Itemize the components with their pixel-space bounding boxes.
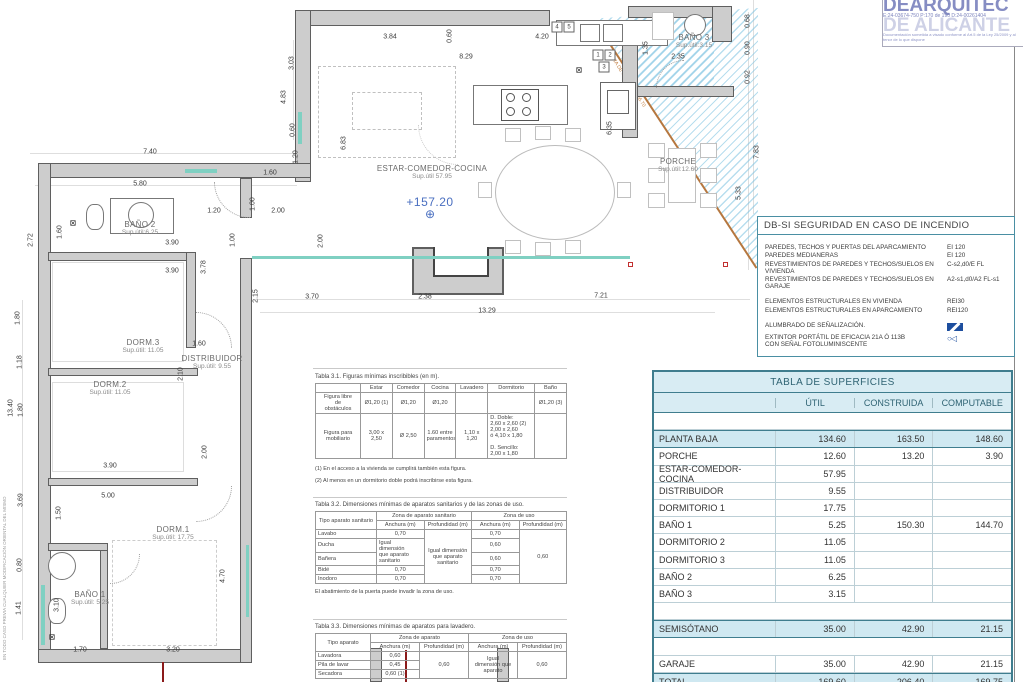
chair	[565, 128, 581, 142]
surfaces-computable-value: 144.70	[932, 517, 1011, 533]
dimension-label: 1.80	[15, 311, 22, 325]
surfaces-util-value: 9.55	[775, 483, 854, 499]
visado-stamp: DEARQUITEC E:24-03674-750 P:170 de 190 D…	[882, 0, 1023, 47]
t31-header: Baño	[535, 384, 567, 393]
fire-safety-row: Revestimientos de paredes y techos/suelo…	[765, 261, 1007, 275]
fire-safety-value: C-s2,d0/E FL	[947, 261, 1007, 268]
t33-cell: 0,60	[518, 652, 567, 679]
surfaces-construida-value	[854, 483, 933, 499]
dimension-label: 7.21	[594, 293, 608, 300]
fire-safety-group: Elementos estructurales en vivienda REI3…	[765, 298, 1007, 314]
window	[185, 169, 217, 173]
surfaces-util-value: 17.75	[775, 500, 854, 516]
t31-cell: Ø1,20 (3)	[535, 393, 567, 414]
dimension-label: 6.35	[607, 121, 614, 135]
fire-safety-label: Paredes medianeras	[765, 252, 947, 259]
dimension-label: 6.83	[341, 136, 348, 150]
window	[298, 112, 302, 144]
dimension-label: 1.35	[643, 41, 650, 55]
porch-chair	[648, 143, 665, 158]
t32-header: Zona de aparato sanitario	[377, 512, 472, 521]
sink	[603, 24, 623, 42]
floor-plan-sheet: COTA DE SÓTANO +156.70	[0, 0, 1024, 682]
fire-safety-row: Paredes medianeras EI 120	[765, 252, 1007, 259]
t32-header: Anchura (m)	[377, 521, 425, 530]
room-label: DORM.1 Sup.útil: 17.75	[152, 525, 194, 541]
tabla-3-3: Tabla 3.3. Dimensiones mínimas de aparat…	[315, 624, 567, 679]
sink	[580, 24, 600, 42]
surfaces-table-row: ESTAR-COMEDOR-COCINA 57.95	[654, 466, 1011, 483]
fire-safety-label: Elementos estructurales en aparcamiento	[765, 307, 947, 314]
t31-cell	[488, 393, 535, 414]
surfaces-util-value: 11.05	[775, 534, 854, 550]
room-label: DORM.2 Sup.útil: 11.05	[89, 380, 130, 396]
porch-chair	[700, 193, 717, 208]
surfaces-computable-value	[932, 466, 1011, 482]
surfaces-table-row: PLANTA BAJA 134.60 163.50 148.60	[654, 430, 1011, 448]
porch-chair	[700, 143, 717, 158]
porch-chair	[648, 193, 665, 208]
dimension-label: 3.90	[103, 463, 117, 470]
t31-cell	[456, 393, 488, 414]
chair	[617, 182, 631, 198]
appliance-tag: 4	[552, 22, 563, 33]
surfaces-room-name: SEMISÓTANO	[654, 621, 775, 637]
surfaces-header-construida: CONSTRUIDA	[854, 398, 933, 408]
surfaces-util-value: 3.15	[775, 586, 854, 602]
surfaces-computable-value	[932, 638, 1011, 654]
window	[41, 585, 45, 645]
t32-header: Anchura (m)	[472, 521, 520, 530]
dimension-label: 1.20	[207, 208, 221, 215]
fire-safety-table: DB-SI SEGURIDAD EN CASO DE INCENDIO Pare…	[757, 216, 1015, 357]
t32-cell: 0,70	[377, 575, 425, 584]
dimension-label: 4.83	[281, 90, 288, 104]
fire-safety-row: Elementos estructurales en vivienda REI3…	[765, 298, 1007, 305]
surfaces-construida-value	[854, 552, 933, 568]
tabla-3-2-table: Tipo aparato sanitario Zona de aparato s…	[315, 511, 567, 584]
dimension-label: 1.41	[16, 601, 23, 615]
room-area: Sup.útil: 11.05	[89, 389, 130, 396]
burner	[506, 107, 515, 116]
surfaces-table: TABLA DE SUPERFICIES ÚTIL CONSTRUIDA COM…	[652, 370, 1013, 682]
t32-cell: Bidé	[316, 566, 377, 575]
surfaces-util-value	[775, 603, 854, 619]
t32-cell: Ducha	[316, 539, 377, 553]
fire-safety-value: A2-s1,d0/A2 FL-s1	[947, 276, 1007, 283]
section-divider	[313, 619, 567, 620]
section-divider	[313, 497, 567, 498]
bath3-shower	[652, 12, 674, 40]
extractor-fan-icon: ⊠	[576, 66, 583, 75]
surfaces-table-body: PLANTA BAJA 134.60 163.50 148.60 PORCHE …	[654, 413, 1011, 682]
surfaces-table-row: DORMITORIO 2 11.05	[654, 534, 1011, 551]
surfaces-util-value	[775, 413, 854, 429]
section-mark	[162, 662, 164, 682]
surfaces-util-value: 11.05	[775, 552, 854, 568]
surfaces-header-computable: COMPUTABLE	[932, 398, 1011, 408]
chair	[535, 126, 551, 140]
dimension-label: 2.00	[271, 208, 285, 215]
surfaces-computable-value	[932, 534, 1011, 550]
dimension-label: 0.60	[290, 123, 297, 137]
surfaces-computable-value	[932, 483, 1011, 499]
surfaces-room-name: PORCHE	[654, 448, 775, 464]
fire-safety-group: Alumbrado de señalización. Extintor port…	[765, 322, 1007, 349]
t33-cell: 0,60	[371, 652, 420, 661]
porch-chair	[700, 168, 717, 183]
surfaces-computable-value	[932, 569, 1011, 585]
t32-header: Profundidad (m)	[424, 521, 472, 530]
t31-cell: 1,10 x 1,20	[456, 414, 488, 459]
chair	[565, 240, 581, 254]
room-area: Sup.útil 57.95	[377, 173, 487, 180]
surfaces-construida-value: 42.90	[854, 656, 933, 672]
t31-header	[316, 384, 361, 393]
dimension-label: 1.60	[57, 225, 64, 239]
dimension-label: 5.00	[101, 493, 115, 500]
wall	[712, 6, 732, 42]
fire-safety-value: EI 120	[947, 244, 1007, 251]
margin-note: EN TODO CASO PREVIA CUALQUIER MODIFICACI…	[2, 497, 7, 660]
bed-dorm1	[112, 540, 217, 646]
surfaces-util-value	[775, 638, 854, 654]
room-area: Sup.útil:12.60	[658, 166, 698, 173]
t33-cell: Igual dimensión que aparato	[469, 652, 518, 679]
t33-cell: 0,60 (1)	[371, 670, 420, 679]
dimension-label: 0.60	[447, 29, 454, 43]
bed-dorm3	[52, 262, 184, 362]
fire-safety-row: Elementos estructurales en aparcamiento …	[765, 307, 1007, 314]
surfaces-util-value: 169.60	[775, 674, 854, 682]
level-crosshair-icon: ⊕	[406, 209, 453, 219]
room-label: DISTRIBUIDOR Sup.útil: 9.55	[182, 354, 243, 370]
wall	[38, 649, 252, 663]
chair	[535, 242, 551, 256]
room-name: BAÑO 2	[122, 220, 158, 229]
surfaces-room-name: DORMITORIO 1	[654, 500, 775, 516]
surfaces-construida-value	[854, 466, 933, 482]
t33-header: Anchura (m)	[469, 643, 518, 652]
dimension-label: 1.00	[230, 233, 237, 247]
surfaces-construida-value: 163.50	[854, 431, 933, 447]
tabla-3-1-caption: Tabla 3.1. Figuras mínimas inscribibles …	[315, 374, 567, 380]
surfaces-computable-value	[932, 586, 1011, 602]
surfaces-construida-value: 13.20	[854, 448, 933, 464]
t31-header: Dormitorio	[488, 384, 535, 393]
surfaces-table-row: DORMITORIO 3 11.05	[654, 552, 1011, 569]
fire-safety-label: Revestimientos de paredes y techos/suelo…	[765, 261, 947, 275]
dining-table	[495, 145, 615, 240]
t32-cell: 0,70	[472, 530, 520, 539]
t32-cell: 0,60	[472, 539, 520, 553]
dimension-label: 13.29	[478, 308, 496, 315]
tabla-3-3-table: Tipo aparato Zona de aparato Zona de uso…	[315, 633, 567, 679]
t32-header: Profundidad (m)	[519, 521, 567, 530]
surfaces-construida-value	[854, 586, 933, 602]
t33-header: Tipo aparato	[316, 634, 371, 652]
surfaces-util-value: 5.25	[775, 517, 854, 533]
red-marker	[628, 262, 633, 267]
dimension-label: 2.72	[28, 233, 35, 247]
fire-safety-symbol-icon	[947, 322, 1007, 333]
fire-safety-title: DB-SI SEGURIDAD EN CASO DE INCENDIO	[757, 216, 1015, 235]
fire-safety-label: Revestimientos de paredes y techos/suelo…	[765, 276, 947, 290]
room-label: ESTAR-COMEDOR-COCINA Sup.útil 57.95	[377, 164, 487, 180]
t31-cell: Ø1,20	[424, 393, 456, 414]
bath1-washbasin	[48, 552, 76, 580]
dimension-label: 5.33	[736, 186, 743, 200]
dimension-label: 1.80	[18, 403, 25, 417]
surfaces-table-row: BAÑO 3 3.15	[654, 586, 1011, 603]
room-area: Sup.útil: 11.05	[122, 347, 163, 354]
dimension-label: 2.35	[671, 54, 685, 61]
surfaces-construida-value	[854, 569, 933, 585]
t33-header: Zona de uso	[469, 634, 567, 643]
surfaces-computable-value	[932, 500, 1011, 516]
dimension-label: 2.00	[318, 234, 325, 248]
surfaces-header-util: ÚTIL	[775, 398, 854, 408]
room-label: BAÑO 1 Sup.útil: 5.25	[71, 590, 109, 606]
surfaces-room-name: DISTRIBUIDOR	[654, 483, 775, 499]
dimension-label: 3.78	[201, 260, 208, 274]
dimension-label: 3.10	[54, 598, 61, 612]
dimension-label: 1.70	[73, 647, 87, 654]
t32-cell: Igual dimensión que aparato sanitario	[424, 530, 472, 584]
tabla-3-1: Tabla 3.1. Figuras mínimas inscribibles …	[315, 374, 567, 487]
t32-cell: Lavabo	[316, 530, 377, 539]
t33-cell: Pila de lavar	[316, 661, 371, 670]
chair	[505, 128, 521, 142]
dimension-label: 7.83	[754, 145, 761, 159]
room-name: DISTRIBUIDOR	[182, 354, 243, 363]
surfaces-table-row: DISTRIBUIDOR 9.55	[654, 483, 1011, 500]
room-name: BAÑO 1	[71, 590, 109, 599]
tabla-3-2-note: El abatimiento de la puerta puede invadi…	[315, 589, 567, 595]
room-label: PORCHE Sup.útil:12.60	[658, 157, 698, 173]
t33-cell: 0,45	[371, 661, 420, 670]
extractor-fan-icon: ⊠	[70, 219, 77, 228]
dimension-label: 3.90	[165, 268, 179, 275]
interior-wall	[48, 368, 198, 376]
dimension-label: 3.84	[383, 34, 397, 41]
surfaces-table-row	[654, 413, 1011, 430]
fire-safety-row: Extintor portátil de eficacia 21A ó 113B…	[765, 334, 1007, 348]
dimension-label: 0.92	[745, 70, 752, 84]
surfaces-table-title: TABLA DE SUPERFICIES	[654, 372, 1011, 393]
fire-safety-value: REI120	[947, 307, 1007, 314]
tabla-3-2: Tabla 3.2. Dimensiones mínimas de aparat…	[315, 502, 567, 595]
surfaces-room-name: DORMITORIO 2	[654, 534, 775, 550]
surfaces-table-row: GARAJE 35.00 42.90 21.15	[654, 656, 1011, 673]
fire-safety-row: Paredes, techos y puertas del aparcamien…	[765, 244, 1007, 251]
t33-header: Zona de aparato	[371, 634, 469, 643]
surfaces-room-name: BAÑO 2	[654, 569, 775, 585]
level-mark: +157.20 ⊕	[406, 195, 453, 219]
surfaces-computable-value: 169.75	[932, 674, 1011, 682]
surfaces-construida-value: 150.30	[854, 517, 933, 533]
surfaces-table-row	[654, 638, 1011, 655]
surfaces-room-name	[654, 413, 775, 429]
surfaces-table-row: BAÑO 2 6.25	[654, 569, 1011, 586]
tabla-3-3-caption: Tabla 3.3. Dimensiones mínimas de aparat…	[315, 624, 567, 630]
surfaces-table-row: TOTAL 169.60 206.40 169.75	[654, 673, 1011, 682]
t31-cell: 1.60 entre paramentos	[424, 414, 456, 459]
t31-note-2: (2) Al menos en un dormitorio doble podr…	[315, 476, 567, 488]
surfaces-construida-value	[854, 638, 933, 654]
glazed-facade	[252, 256, 630, 259]
t31-header: Comedor	[392, 384, 424, 393]
chair	[478, 182, 492, 198]
dim-guide-line	[255, 299, 750, 300]
dimension-label: 1.18	[17, 355, 24, 369]
t32-cell: 0,60	[519, 530, 567, 584]
t31-header: Lavadero	[456, 384, 488, 393]
fireplace-opening	[433, 247, 489, 277]
fire-safety-value: EI 120	[947, 252, 1007, 259]
room-name: PORCHE	[658, 157, 698, 166]
t32-cell: 0,70	[377, 530, 425, 539]
surfaces-table-row: BAÑO 1 5.25 150.30 144.70	[654, 517, 1011, 534]
burner	[506, 93, 515, 102]
t32-cell: 0,70	[472, 566, 520, 575]
t32-cell: 0,60	[472, 552, 520, 566]
tabla-3-1-notes: (1) En el acceso a la vivienda se cumpli…	[315, 464, 567, 487]
room-name: ESTAR-COMEDOR-COCINA	[377, 164, 487, 173]
t31-note-1: (1) En el acceso a la vivienda se cumpli…	[315, 464, 567, 476]
dimension-label: 1.60	[263, 170, 277, 177]
tabla-3-2-caption: Tabla 3.2. Dimensiones mínimas de aparat…	[315, 502, 567, 508]
wall	[295, 10, 550, 26]
chair	[505, 240, 521, 254]
t31-cell: Ø1,20 (1)	[361, 393, 393, 414]
dimension-label: 0.68	[745, 14, 752, 28]
surfaces-computable-value: 148.60	[932, 431, 1011, 447]
dimension-label: 5.80	[133, 181, 147, 188]
interior-wall	[48, 252, 193, 261]
interior-wall	[48, 478, 198, 486]
room-area: Sup.útil:6.25	[122, 229, 158, 236]
t33-cell: Lavadora	[316, 652, 371, 661]
burner	[522, 93, 531, 102]
t32-cell: Igual dimensión que aparato sanitario	[377, 539, 425, 566]
dimension-label: 2.15	[253, 289, 260, 303]
room-area: Sup.útil: 9.55	[182, 363, 243, 370]
surfaces-util-value: 35.00	[775, 656, 854, 672]
t33-header: Anchura (m)	[371, 643, 420, 652]
fire-safety-label: Elementos estructurales en vivienda	[765, 298, 947, 305]
dimension-label: 3.70	[305, 294, 319, 301]
room-label: DORM.3 Sup.útil: 11.05	[122, 338, 163, 354]
dimension-label: 2.00	[202, 445, 209, 459]
dimension-label: 3.90	[165, 240, 179, 247]
t31-cell: 3,00 x 2,50	[361, 414, 393, 459]
fire-safety-group: Paredes, techos y puertas del aparcamien…	[765, 244, 1007, 291]
surfaces-computable-value	[932, 603, 1011, 619]
surfaces-computable-value: 3.90	[932, 448, 1011, 464]
appliance-tag: 2	[605, 50, 616, 61]
surfaces-room-name	[654, 603, 775, 619]
fire-safety-body: Paredes, techos y puertas del aparcamien…	[757, 235, 1015, 357]
surfaces-computable-value	[932, 552, 1011, 568]
fire-safety-value: REI30	[947, 298, 1007, 305]
surfaces-util-value: 134.60	[775, 431, 854, 447]
surfaces-room-name: GARAJE	[654, 656, 775, 672]
interior-wall	[186, 252, 196, 348]
room-label: BAÑO 2 Sup.útil:6.25	[122, 220, 158, 236]
t33-header: Profundidad (m)	[420, 643, 469, 652]
dimension-label: 4.20	[535, 34, 549, 41]
surfaces-construida-value	[854, 534, 933, 550]
t31-cell: Figura para mobiliario	[316, 414, 361, 459]
surfaces-table-row: SEMISÓTANO 35.00 42.90 21.15	[654, 620, 1011, 638]
dim-guide-line	[22, 300, 23, 640]
t32-header: Tipo aparato sanitario	[316, 512, 377, 530]
dimension-label: 8.29	[459, 54, 473, 61]
surfaces-room-name: BAÑO 3	[654, 586, 775, 602]
room-name: DORM.1	[152, 525, 194, 534]
surfaces-table-header: ÚTIL CONSTRUIDA COMPUTABLE	[654, 393, 1011, 413]
t32-cell: 0,70	[472, 575, 520, 584]
fire-safety-label: Extintor portátil de eficacia 21A ó 113B…	[765, 334, 947, 348]
extractor-fan-icon: ⊠	[49, 633, 56, 642]
door-arc	[196, 486, 232, 522]
surfaces-construida-value	[854, 500, 933, 516]
t33-cell: Secadora	[316, 670, 371, 679]
surfaces-table-row	[654, 603, 1011, 620]
room-name: DORM.2	[89, 380, 130, 389]
tabla-3-1-table: Estar Comedor Cocina Lavadero Dormitorio…	[315, 383, 567, 459]
surfaces-construida-value	[854, 413, 933, 429]
window	[246, 545, 249, 617]
surfaces-room-name: TOTAL	[654, 674, 775, 682]
dimension-label: 13.40	[8, 399, 15, 417]
room-area: Sup.útil:3.15	[676, 42, 712, 49]
t32-cell: 0,70	[377, 566, 425, 575]
dimension-label: 1.50	[56, 506, 63, 520]
t32-cell: Inodoro	[316, 575, 377, 584]
surfaces-room-name: DORMITORIO 3	[654, 552, 775, 568]
dimension-label: 7.40	[143, 149, 157, 156]
burner	[522, 107, 531, 116]
dimension-label: 0.90	[745, 41, 752, 55]
appliance-tag: 1	[593, 50, 604, 61]
t31-cell: Ø1,20	[392, 393, 424, 414]
fire-safety-label: Alumbrado de señalización.	[765, 322, 947, 329]
room-area: Sup.útil: 5.25	[71, 599, 109, 606]
surfaces-construida-value	[854, 603, 933, 619]
dimension-label: 2.38	[418, 294, 432, 301]
dimension-label: 3.69	[18, 493, 25, 507]
stamp-subtitle: DE ALICANTE	[883, 18, 1023, 33]
dimension-label: 1.20	[293, 150, 300, 164]
coffee-table	[352, 92, 422, 130]
dimension-label: 3.03	[289, 56, 296, 70]
room-name: BAÑO 3	[676, 33, 712, 42]
t31-cell: Figura libre de obstáculos	[316, 393, 361, 414]
appliance-tag: 3	[599, 62, 610, 73]
t32-cell: Bañera	[316, 552, 377, 566]
fire-safety-symbol-icon	[947, 334, 1007, 343]
surfaces-room-name: PLANTA BAJA	[654, 431, 775, 447]
fire-safety-row: Revestimientos de paredes y techos/suelo…	[765, 276, 1007, 290]
appliance-tag: 5	[564, 22, 575, 33]
t31-cell: Ø 2,50	[392, 414, 424, 459]
t31-header: Estar	[361, 384, 393, 393]
surfaces-construida-value: 42.90	[854, 621, 933, 637]
stamp-title: DEARQUITEC	[883, 0, 1023, 13]
dimension-label: 1.60	[192, 341, 206, 348]
